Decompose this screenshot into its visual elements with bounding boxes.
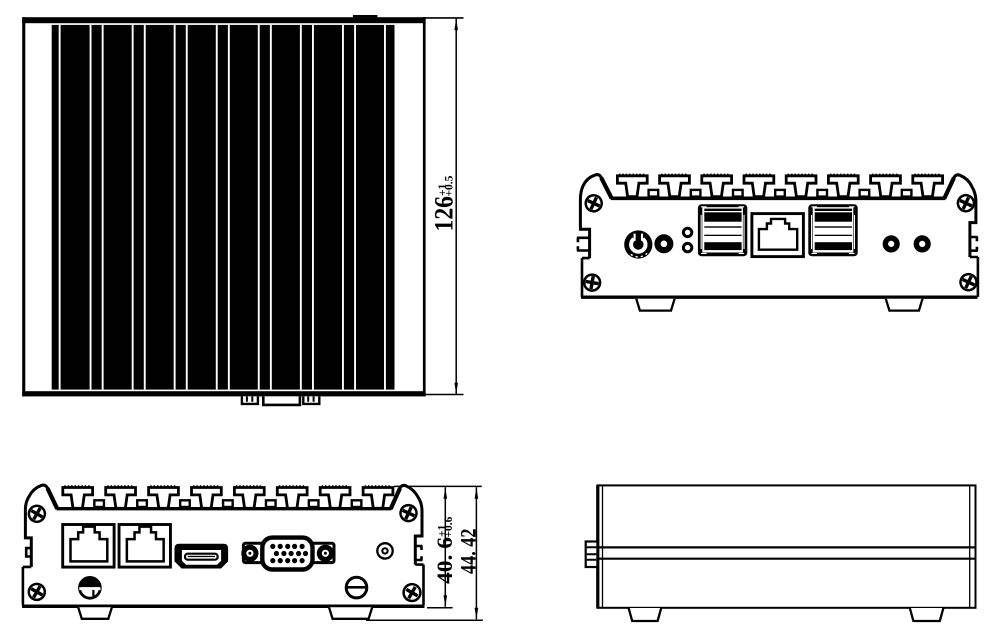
- svg-text:40. 6+1+0.6: 40. 6+1+0.6: [432, 516, 457, 584]
- svg-text:44. 42: 44. 42: [455, 529, 480, 575]
